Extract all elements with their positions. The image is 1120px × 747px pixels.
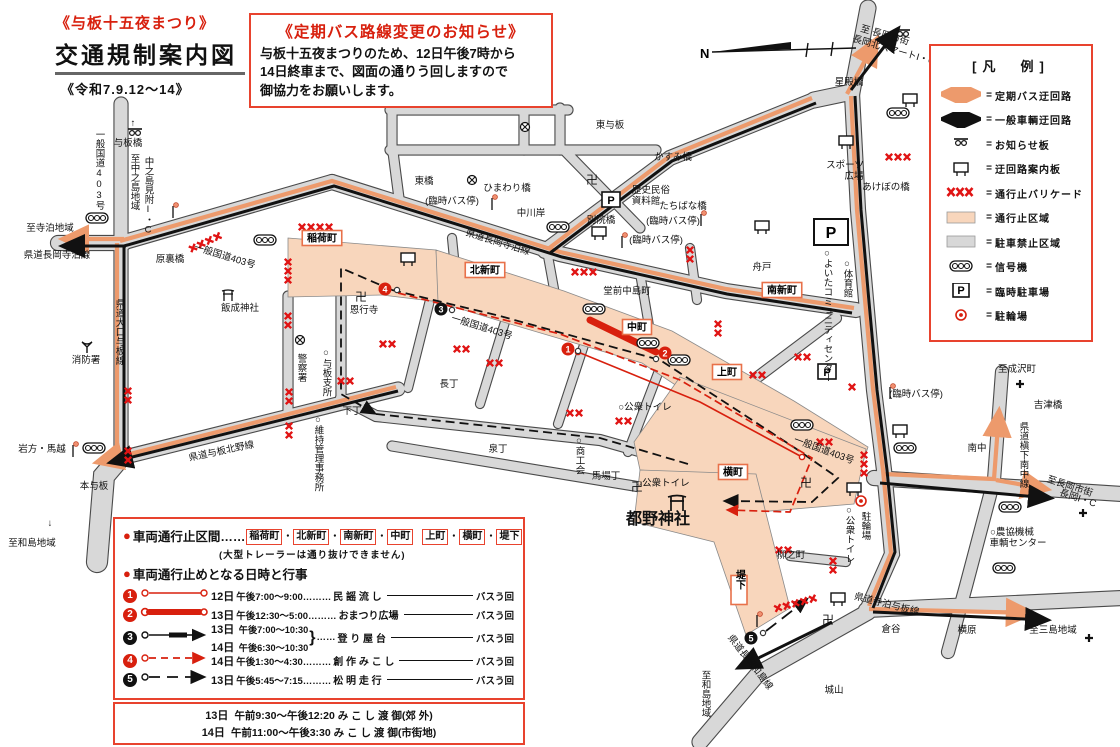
map-label: 泉丁 — [488, 443, 507, 455]
legend-row: =迂回路案内板 — [939, 157, 1083, 182]
map-label: 卍 — [631, 480, 643, 494]
map-label: 卍 — [822, 613, 834, 627]
map-label: 一般国道403号 — [193, 241, 257, 271]
map-label: ○農協機械 — [990, 526, 1034, 538]
barricade-x-icon — [849, 384, 855, 390]
chip-separator: ・ — [330, 531, 339, 541]
legend-label: 駐輪場 — [995, 308, 1083, 323]
equals-sign: = — [983, 139, 995, 150]
svg-text:横町: 横町 — [723, 466, 743, 479]
facility-cross-icon — [468, 176, 477, 185]
leader-line — [399, 660, 473, 661]
shrine-torii-icon — [222, 290, 234, 301]
direction-cross-icon — [1079, 509, 1087, 517]
barricade-x-icon — [454, 346, 469, 352]
restriction-info-box: ● 車両通行止区間…… 稲荷町・北新町・南新町・中町上町・横町・堤下 (大型トレ… — [113, 517, 525, 700]
bus-detour-note: バスう回 — [476, 673, 514, 687]
event-name: 民 謡 流 し — [333, 588, 381, 603]
mikoshi-text: 午前9:30〜午後12:20 み こ し 渡 御(郊 外) — [234, 708, 432, 725]
facility-cross-icon — [296, 336, 305, 345]
map-label: 歴史民俗 — [632, 184, 671, 196]
map-label: ○与板支所 — [321, 348, 333, 398]
notice-line-3: 御協力をお願いします。 — [260, 82, 542, 100]
traffic-signal-icon — [999, 502, 1021, 512]
bus-detour-note: バスう回 — [476, 608, 514, 622]
legend-box: [凡 例] =定期バス迂回路=一般車輌迂回路=お知らせ板=迂回路案内板=通行止バ… — [929, 44, 1093, 342]
festival-name: 《与板十五夜まつり》 — [55, 12, 245, 33]
barricade-x-icon — [286, 423, 292, 438]
route-endpoint-dot — [760, 630, 765, 635]
map-label: 卍 — [355, 290, 367, 304]
map-label: 至寺泊地域 — [26, 222, 74, 234]
bus-detour-note: バスう回 — [476, 589, 514, 603]
equals-sign: = — [983, 163, 995, 174]
map-label: (臨時バス停) — [425, 195, 479, 207]
map-label: 堂前中島町 — [603, 285, 651, 297]
page-header: 《与板十五夜まつり》 交通規制案内図 《令和7.9.12〜14》 — [55, 12, 245, 98]
closed-town-chip: 上町 — [422, 529, 448, 545]
map-label: 至和島地域 — [700, 670, 712, 718]
legend-label: 迂回路案内板 — [995, 161, 1083, 176]
map-label: 本与板 — [80, 480, 109, 492]
map-label: (臨時バス停) — [629, 234, 683, 246]
barricade-x-icon — [795, 354, 810, 360]
route-endpoint-dot — [449, 307, 454, 312]
route-line-symbol — [139, 604, 211, 625]
barricade-x-icon — [886, 154, 910, 160]
map-label: 別院橋 — [587, 214, 616, 226]
legend-row: =信号機 — [939, 255, 1083, 280]
schedule-row: 213日午後12:30〜5:00………おまつり広場バスう回 — [123, 605, 515, 624]
route-endpoint-dot — [394, 287, 399, 292]
red-bullet-icon: ● — [123, 566, 131, 581]
legend-row: P=臨時駐車場 — [939, 279, 1083, 304]
map-label: あけぼの橋 — [862, 181, 910, 193]
red-bullet-icon: ● — [123, 528, 131, 543]
north-arrow: N — [700, 42, 856, 61]
barricade-x-icon — [380, 341, 395, 347]
chip-separator: ・ — [449, 531, 458, 541]
schedule-dates: 13日 午後7:00〜10:3014日 午後6:30〜10:30 — [211, 620, 308, 655]
event-name: 松 明 走 行 — [333, 672, 381, 687]
map-label: 東橋 — [414, 175, 434, 187]
legend-label: 定期バス迂回路 — [995, 88, 1083, 103]
schedule-time: 午後7:00〜9:00……… — [236, 589, 331, 603]
schedule-label: 車両通行止めとなる日時と行事 — [133, 564, 308, 583]
north-label: N — [700, 46, 709, 61]
legend-label: 通行止バリケード — [995, 186, 1083, 201]
notice-board-icon — [128, 129, 142, 135]
barricade-x-icon — [715, 321, 721, 336]
map-label: ○商工会 — [574, 435, 586, 475]
map-label: 至中之島地域 — [129, 154, 141, 211]
map-label: 岩方・馬越 — [18, 443, 66, 455]
map-label: かすみ橋 — [654, 151, 693, 163]
map-label: 城山 — [824, 685, 843, 696]
fire-station-icon — [82, 342, 92, 353]
map-label: 車輌センター — [989, 537, 1046, 549]
map-label: ひまわり橋 — [483, 182, 531, 194]
notice-line-1: 与板十五夜まつりのため、12日午後7時から — [260, 45, 542, 63]
svg-text:1: 1 — [565, 344, 570, 354]
trailer-note: (大型トレーラーは通り抜けできません) — [219, 547, 515, 561]
legend-row: =通行止区域 — [939, 206, 1083, 231]
map-label: 原裏橋 — [156, 253, 185, 265]
map-label: 飯成神社 — [221, 302, 260, 314]
event-number-marker: 3 — [435, 303, 448, 316]
bus-detour-note: バスう回 — [476, 631, 514, 645]
barricade-x-icon — [567, 410, 582, 416]
temporary-parking-icon: P — [602, 192, 620, 207]
equals-sign: = — [983, 237, 995, 248]
svg-text:堤下: 堤下 — [734, 568, 746, 590]
traffic-signal-icon — [86, 213, 108, 223]
map-label: 恩行寺 — [350, 304, 379, 316]
temporary-parking-icon: P — [814, 219, 848, 245]
traffic-signal-icon — [637, 338, 659, 348]
detour-guide-board-icon — [592, 227, 606, 240]
map-label: ↑ — [131, 118, 136, 129]
mikoshi-row: 13日午前9:30〜午後12:20 み こ し 渡 御(郊 外) — [115, 708, 523, 725]
map-label: 下丁 — [342, 406, 361, 417]
closed-town-chip: 稲荷町 — [246, 529, 282, 545]
legend-title: [凡 例] — [939, 56, 1083, 75]
map-label: 至和島地域 — [8, 537, 56, 549]
legend-label: 駐車禁止区域 — [995, 235, 1083, 250]
event-number-badge: 5 — [123, 673, 137, 687]
town-chip: 稲荷町 — [302, 231, 342, 246]
town-chip: 横町 — [719, 465, 748, 480]
event-number-marker: 2 — [659, 347, 672, 360]
map-label: ○維持管理事務所 — [313, 414, 325, 492]
closed-town-chip: 北新町 — [293, 529, 329, 545]
map-label: 至三島地域 — [1029, 624, 1077, 636]
temp-bus-stop-icon — [73, 442, 78, 457]
map-label: ○よいたコミュニティセンター — [822, 248, 834, 383]
barricade-x-icon — [572, 269, 596, 275]
closed-sections-row: ● 車両通行止区間…… 稲荷町・北新町・南新町・中町上町・横町・堤下 — [123, 526, 515, 545]
svg-text:稲荷町: 稲荷町 — [307, 232, 337, 245]
map-label: 卍 — [800, 476, 812, 490]
map-label: 長丁 — [439, 379, 458, 390]
mikoshi-box: 13日午前9:30〜午後12:20 み こ し 渡 御(郊 外)14日午前11:… — [113, 702, 525, 745]
detour-guide-board-icon — [903, 94, 917, 107]
route-endpoint-dot — [653, 356, 658, 361]
bus-route-notice-box: 《定期バス路線変更のお知らせ》 与板十五夜まつりのため、12日午後7時から 14… — [249, 13, 553, 108]
town-chip: 北新町 — [465, 263, 505, 278]
event-name: 登 り 屋 台 — [338, 630, 386, 645]
barricade-x-icon — [299, 224, 332, 230]
map-label: 星殿橋 — [835, 76, 864, 88]
map-label: 県道槇下南中線 — [1018, 422, 1030, 489]
temp-bus-stop-icon — [173, 203, 178, 218]
svg-text:3: 3 — [438, 304, 443, 314]
route-endpoint-dot — [575, 348, 580, 353]
period-label: 《令和7.9.12〜14》 — [61, 79, 245, 98]
svg-text:P: P — [607, 195, 614, 207]
route-line-symbol — [139, 627, 211, 648]
temp-bus-stop-icon — [492, 195, 497, 210]
legend-rows: =定期バス迂回路=一般車輌迂回路=お知らせ板=迂回路案内板=通行止バリケード=通… — [939, 83, 1083, 328]
map-label: 与板橋 — [114, 137, 143, 149]
map-label: 南中 — [967, 442, 986, 454]
schedule-rows: 112日午後7:00〜9:00………民 謡 流 しバスう回213日午後12:30… — [123, 586, 515, 689]
map-label: (臨時バス停) — [646, 215, 700, 227]
legend-label: 通行止区域 — [995, 210, 1083, 225]
notice-line-2: 14日終車まで、図面の通りう回しますので — [260, 63, 542, 81]
detour-guide-board-icon — [831, 593, 845, 606]
map-label: たちばな橋 — [659, 200, 707, 212]
map-label: 警察署 — [296, 353, 308, 382]
mikoshi-text: 午前11:00〜午後3:30 み こ し 渡 御(市街地) — [231, 725, 436, 742]
closed-town-chip: 中町 — [387, 529, 413, 545]
route-line-symbol — [139, 669, 211, 690]
leader-line — [387, 679, 473, 680]
road-segment — [408, 300, 430, 388]
schedule-time: 午後5:45〜7:15……… — [236, 673, 331, 687]
closed-area-icon — [939, 210, 983, 226]
bus-detour-note: バスう回 — [476, 654, 514, 668]
legend-row: =駐輪場 — [939, 304, 1083, 329]
legend-label: お知らせ板 — [995, 137, 1083, 152]
event-number-badge: 4 — [123, 654, 137, 668]
map-label: 横原 — [957, 624, 976, 636]
traffic-signal-icon — [993, 563, 1015, 573]
legend-row: =駐車禁止区域 — [939, 230, 1083, 255]
direction-cross-icon — [1016, 380, 1024, 388]
map-label: ○公衆トイレ — [636, 477, 689, 489]
bus-detour-arrow-icon — [939, 87, 983, 103]
svg-text:南新町: 南新町 — [767, 284, 797, 297]
map-label: ○体育館 — [842, 258, 854, 298]
mikoshi-rows: 13日午前9:30〜午後12:20 み こ し 渡 御(郊 外)14日午前11:… — [115, 708, 523, 742]
svg-text:2: 2 — [662, 348, 667, 358]
no-parking-area-icon — [939, 234, 983, 250]
map-label: 中川岸 — [517, 207, 546, 219]
car-detour-arrow-icon — [939, 112, 983, 128]
event-name: 創 作 み こ し — [333, 653, 394, 668]
route-line-symbol — [139, 650, 211, 671]
event-number-badge: 1 — [123, 589, 137, 603]
detour-guide-board-icon — [893, 425, 907, 438]
town-chip: 中町 — [623, 320, 652, 335]
event-number-marker: 5 — [745, 632, 758, 645]
closed-town-chips: 稲荷町・北新町・南新町・中町上町・横町・堤下 — [245, 526, 523, 545]
mikoshi-date: 13日 — [205, 708, 228, 725]
closed-town-chip: 南新町 — [340, 529, 376, 545]
legend-row: =一般車輌迂回路 — [939, 108, 1083, 133]
map-label: (臨時バス停) — [889, 388, 943, 400]
town-chip: 上町 — [713, 365, 742, 380]
chip-separator: ・ — [377, 531, 386, 541]
legend-label: 臨時駐車場 — [995, 284, 1083, 299]
map-label: 至成沢町 — [998, 363, 1037, 375]
traffic-signal-icon — [887, 108, 909, 118]
traffic-signal-icon — [894, 443, 916, 453]
schedule-row: 513日午後5:45〜7:15………松 明 走 行バスう回 — [123, 670, 515, 689]
equals-sign: = — [983, 261, 995, 272]
schedule-row: 313日 午後7:00〜10:3014日 午後6:30〜10:30}……登 り … — [123, 624, 515, 651]
legend-row: =通行止バリケード — [939, 181, 1083, 206]
map-label: 倉谷 — [881, 623, 901, 635]
schedule-row: 112日午後7:00〜9:00………民 謡 流 しバスう回 — [123, 586, 515, 605]
traffic-signal-icon — [668, 355, 690, 365]
traffic-signal-icon — [791, 420, 813, 430]
equals-sign: = — [983, 310, 995, 321]
leader-line — [404, 614, 473, 615]
page-title: 交通規制案内図 — [55, 36, 245, 75]
closed-sections-label: 車両通行止区間…… — [133, 526, 246, 545]
map-label: ○公衆トイレ — [618, 401, 671, 413]
equals-sign: = — [983, 286, 995, 297]
parking-icon: P — [939, 283, 983, 299]
legend-label: 信号機 — [995, 259, 1083, 274]
mikoshi-row: 14日午前11:00〜午後3:30 み こ し 渡 御(市街地) — [115, 725, 523, 742]
svg-text:P: P — [957, 285, 964, 297]
notice-board-icon — [939, 136, 983, 152]
map-label: 都野神社 — [625, 509, 690, 528]
schedule-date: 12日 — [211, 588, 234, 604]
closed-town-chip: 堤下 — [496, 529, 522, 545]
map-label: 舟戸 — [752, 261, 771, 273]
map-label: ↓ — [48, 518, 53, 529]
legend-row: =お知らせ板 — [939, 132, 1083, 157]
schedule-header: ● 車両通行止めとなる日時と行事 — [123, 564, 515, 583]
map-label: 柳之町 — [777, 549, 806, 561]
facility-cross-icon — [521, 123, 530, 132]
map-label: 中之島見附I・C — [143, 156, 155, 236]
traffic-signal-icon — [83, 443, 105, 453]
schedule-date: 13日 — [211, 672, 234, 688]
event-number-marker: 4 — [379, 283, 392, 296]
road-segment — [700, 612, 868, 742]
notice-title: 《定期バス路線変更のお知らせ》 — [260, 20, 542, 42]
svg-text:北新町: 北新町 — [470, 264, 500, 277]
temp-bus-stop-icon — [701, 211, 706, 226]
map-label: 吉津橋 — [1034, 399, 1063, 411]
bicycle-icon — [939, 308, 983, 324]
svg-text:上町: 上町 — [717, 366, 737, 379]
schedule-date: 14日 — [211, 653, 234, 669]
map-label: 卍 — [586, 173, 598, 187]
map-label: 広場 — [844, 170, 864, 182]
equals-sign: = — [983, 114, 995, 125]
town-chip: 南新町 — [762, 283, 802, 298]
equals-sign: = — [983, 188, 995, 199]
equals-sign: = — [983, 212, 995, 223]
bicycle-parking-icon — [856, 496, 866, 506]
map-label: 資料館 — [632, 195, 661, 207]
equals-sign: = — [983, 90, 995, 101]
map-label: 東与板 — [596, 119, 625, 131]
traffic-signal-icon — [583, 304, 605, 314]
direction-cross-icon — [1085, 634, 1093, 642]
event-number-badge: 3 — [123, 631, 137, 645]
event-number-marker: 1 — [562, 343, 575, 356]
chip-separator: ・ — [283, 531, 292, 541]
map-label: 駐輪場 — [860, 511, 872, 541]
traffic-signal-icon — [254, 235, 276, 245]
leader-line — [391, 637, 473, 638]
map-label: スポーツ — [826, 160, 864, 171]
chip-separator: ・ — [486, 531, 495, 541]
brace: } — [309, 629, 315, 647]
detour-guide-board-icon — [755, 221, 769, 234]
schedule-time: 午後1:30〜4:30……… — [236, 654, 331, 668]
leader-line — [387, 595, 473, 596]
map-label: 県道大口与板線 — [114, 299, 126, 366]
temp-bus-stop-icon — [622, 233, 627, 248]
route-line-symbol — [139, 585, 211, 606]
map-label: 県道長岡寺泊線 — [24, 249, 91, 261]
map-label: 馬場丁 — [592, 470, 621, 482]
svg-text:4: 4 — [382, 284, 387, 294]
event-name: おまつり広場 — [339, 607, 399, 622]
map-label: 一般国道403号 — [94, 130, 106, 211]
signal-icon — [939, 259, 983, 275]
dots: …… — [317, 632, 336, 643]
barricade-icon — [939, 185, 983, 201]
closed-town-chip: 横町 — [459, 529, 485, 545]
legend-label: 一般車輌迂回路 — [995, 112, 1083, 127]
barricade-x-icon — [616, 418, 631, 424]
mikoshi-date: 14日 — [202, 725, 225, 742]
event-number-badge: 2 — [123, 608, 137, 622]
traffic-regulation-map-page: N PPP与板橋一般国道403号↑至中之島地域中之島見附I・C至寺泊地域県道長岡… — [0, 0, 1120, 747]
legend-row: =定期バス迂回路 — [939, 83, 1083, 108]
guide-board-icon — [939, 161, 983, 177]
svg-text:5: 5 — [748, 633, 753, 643]
svg-text:中町: 中町 — [627, 321, 647, 334]
schedule-row: 414日午後1:30〜4:30………創 作 み こ しバスう回 — [123, 651, 515, 670]
svg-text:P: P — [826, 225, 837, 242]
traffic-signal-icon — [547, 222, 569, 232]
map-label: 消防署 — [72, 354, 101, 366]
map-label: ○公衆トイレ — [844, 505, 856, 564]
